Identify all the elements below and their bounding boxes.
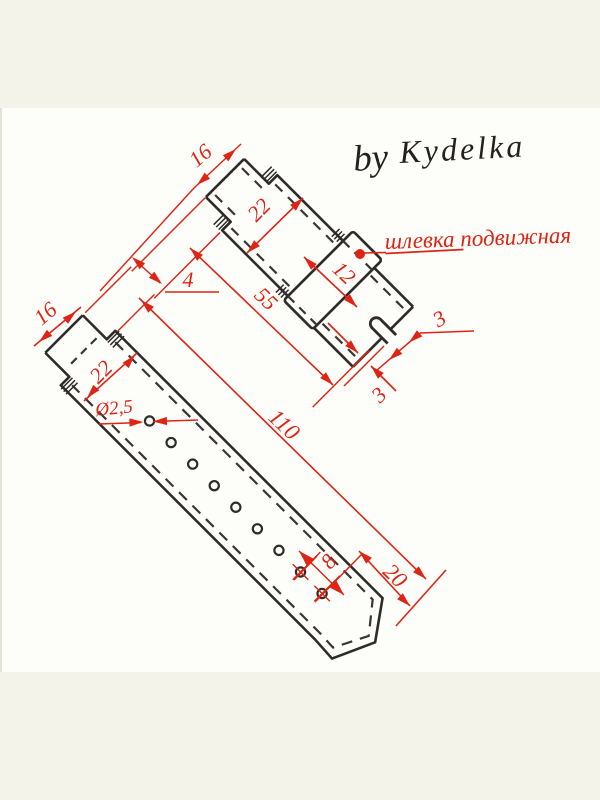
svg-text:Kydelka: Kydelka (397, 127, 526, 170)
svg-text:16: 16 (29, 297, 62, 330)
svg-text:16: 16 (184, 139, 217, 172)
svg-text:22: 22 (84, 355, 117, 388)
svg-text:Ø2,5: Ø2,5 (93, 396, 133, 421)
svg-text:22: 22 (242, 193, 275, 226)
svg-text:шлевка подвижная: шлевка подвижная (384, 223, 571, 254)
svg-text:by: by (352, 137, 390, 180)
svg-text:3: 3 (427, 305, 450, 333)
svg-text:4: 4 (183, 267, 194, 292)
svg-text:3: 3 (365, 382, 391, 408)
svg-text:20: 20 (378, 559, 412, 593)
svg-text:110: 110 (264, 404, 305, 445)
